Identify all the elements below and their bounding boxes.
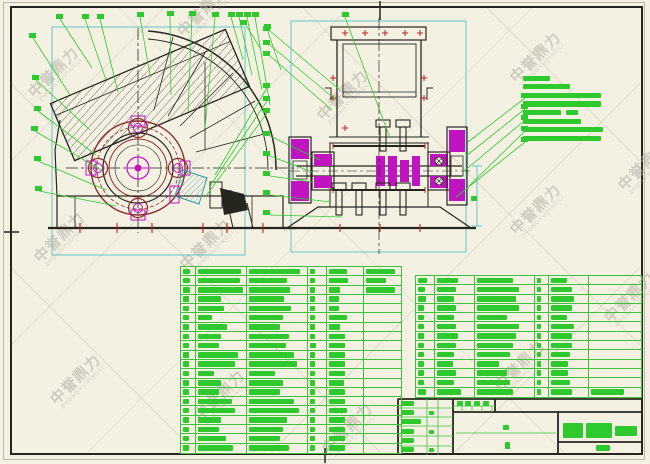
- parts-cell: [247, 332, 307, 340]
- parts-cell: [327, 416, 365, 424]
- technical-notes-block: [523, 74, 608, 143]
- cell-text-bar: [198, 287, 243, 293]
- parts-cell: [589, 295, 642, 303]
- parts-cell: [589, 360, 642, 368]
- cell-text-bar: [198, 278, 240, 284]
- parts-cell: [435, 313, 475, 321]
- parts-cell: [549, 388, 589, 397]
- parts-cell: [181, 425, 196, 433]
- parts-cell: [247, 416, 307, 424]
- parts-cell: [549, 285, 589, 293]
- parts-cell: [327, 286, 365, 294]
- cell-text-bar: [477, 389, 513, 395]
- cell-text-bar: [198, 436, 226, 442]
- parts-cell: [196, 379, 248, 387]
- parts-cell: [327, 267, 365, 275]
- cell-text-bar: [183, 417, 189, 423]
- parts-cell: [196, 388, 248, 396]
- cell-text-bar: [329, 296, 339, 302]
- parts-cell: [247, 351, 307, 359]
- parts-cell: [308, 276, 327, 284]
- cell-text-bar: [437, 287, 456, 293]
- parts-row: [416, 313, 641, 322]
- parts-cell: [196, 351, 248, 359]
- cell-text-bar: [183, 269, 190, 275]
- cell-text-bar: [329, 269, 347, 275]
- parts-cell: [247, 267, 307, 275]
- parts-cell: [589, 332, 642, 340]
- cell-text-bar: [183, 324, 189, 330]
- cell-text-bar: [477, 305, 519, 311]
- parts-row: [181, 323, 401, 332]
- cell-text-bar: [310, 371, 315, 377]
- parts-cell: [308, 360, 327, 368]
- parts-row: [181, 379, 401, 388]
- parts-cell: [327, 388, 365, 396]
- parts-cell: [247, 276, 307, 284]
- title-text-bar: [615, 426, 637, 436]
- parts-cell: [181, 444, 196, 453]
- parts-cell: [308, 379, 327, 387]
- cell-text-bar: [249, 427, 283, 433]
- parts-cell: [535, 304, 549, 312]
- title-text-bar: [505, 442, 510, 449]
- parts-row: [181, 341, 401, 350]
- cell-text-bar: [477, 352, 511, 358]
- parts-row: [416, 332, 641, 341]
- cell-text-bar: [418, 333, 424, 339]
- parts-cell: [549, 295, 589, 303]
- cell-text-bar: [249, 399, 294, 405]
- cell-text-bar: [437, 333, 458, 339]
- parts-cell: [364, 360, 401, 368]
- cell-text-bar: [537, 324, 541, 330]
- parts-cell: [181, 276, 196, 284]
- parts-cell: [327, 397, 365, 405]
- cell-text-bar: [551, 315, 567, 321]
- title-text-bar: [596, 445, 610, 451]
- parts-cell: [196, 295, 248, 303]
- title-text-bar: [401, 401, 414, 406]
- hammers: [332, 120, 410, 215]
- parts-cell: [247, 360, 307, 368]
- cell-text-bar: [366, 278, 385, 284]
- parts-cell: [308, 313, 327, 321]
- parts-cell: [549, 369, 589, 377]
- parts-cell: [308, 332, 327, 340]
- parts-cell: [416, 313, 435, 321]
- parts-cell: [416, 360, 435, 368]
- parts-cell: [181, 286, 196, 294]
- cell-text-bar: [591, 389, 625, 395]
- cell-text-bar: [249, 389, 280, 395]
- parts-cell: [327, 369, 365, 377]
- parts-cell: [589, 350, 642, 358]
- cell-text-bar: [329, 445, 346, 451]
- cell-text-bar: [310, 399, 315, 405]
- parts-cell: [181, 295, 196, 303]
- parts-cell: [435, 295, 475, 303]
- parts-cell: [475, 304, 535, 312]
- note-line: [523, 100, 608, 109]
- parts-row: [416, 276, 641, 285]
- cell-text-bar: [183, 306, 189, 312]
- parts-row: [181, 295, 401, 304]
- parts-row: [416, 378, 641, 387]
- cell-text-bar: [198, 361, 236, 367]
- parts-cell: [475, 313, 535, 321]
- note-text-bar: [523, 101, 601, 106]
- parts-cell: [549, 322, 589, 330]
- parts-cell: [416, 369, 435, 377]
- parts-cell: [181, 304, 196, 312]
- parts-cell: [435, 332, 475, 340]
- parts-list-left: [180, 266, 402, 454]
- parts-row: [416, 350, 641, 359]
- title-text-bar: [586, 423, 612, 438]
- parts-cell: [181, 267, 196, 275]
- title-text-bar: [563, 423, 583, 438]
- cell-text-bar: [437, 380, 455, 386]
- parts-cell: [364, 276, 401, 284]
- cell-text-bar: [329, 436, 346, 442]
- cell-text-bar: [551, 324, 574, 330]
- cell-text-bar: [310, 389, 316, 395]
- parts-cell: [535, 388, 549, 397]
- note-line: [523, 108, 608, 117]
- cell-text-bar: [329, 315, 347, 321]
- parts-cell: [247, 313, 307, 321]
- title-text-bar: [471, 196, 477, 201]
- parts-cell: [327, 295, 365, 303]
- cell-text-bar: [329, 389, 346, 395]
- cell-text-bar: [310, 334, 316, 340]
- cell-text-bar: [418, 343, 424, 349]
- cell-text-bar: [329, 343, 346, 349]
- title-text-bar: [465, 401, 471, 406]
- title-text-bar: [401, 419, 421, 424]
- parts-cell: [247, 397, 307, 405]
- cell-text-bar: [249, 380, 283, 386]
- cell-text-bar: [437, 343, 456, 349]
- cell-text-bar: [183, 389, 189, 395]
- parts-cell: [327, 313, 365, 321]
- cell-text-bar: [249, 352, 294, 358]
- cell-text-bar: [537, 315, 541, 321]
- parts-cell: [308, 267, 327, 275]
- cell-text-bar: [310, 296, 315, 302]
- parts-cell: [435, 360, 475, 368]
- cell-text-bar: [249, 436, 280, 442]
- parts-cell: [589, 285, 642, 293]
- note-line: [523, 83, 608, 92]
- feed-hopper: [50, 29, 249, 160]
- parts-cell: [475, 285, 535, 293]
- parts-cell: [247, 406, 307, 414]
- cell-text-bar: [198, 343, 219, 349]
- cell-text-bar: [310, 445, 316, 451]
- parts-cell: [589, 388, 642, 397]
- cell-text-bar: [366, 269, 394, 275]
- cell-text-bar: [477, 324, 519, 330]
- cell-text-bar: [329, 306, 339, 312]
- parts-cell: [308, 323, 327, 331]
- parts-cell: [549, 304, 589, 312]
- parts-cell: [196, 369, 248, 377]
- front-view: [283, 18, 482, 254]
- cell-text-bar: [551, 352, 570, 358]
- cell-text-bar: [551, 343, 572, 349]
- parts-cell: [327, 341, 365, 349]
- cell-text-bar: [477, 315, 508, 321]
- cell-text-bar: [551, 305, 572, 311]
- cell-text-bar: [418, 324, 424, 330]
- cell-text-bar: [310, 269, 316, 275]
- parts-row: [181, 360, 401, 369]
- parts-cell: [364, 425, 401, 433]
- parts-row: [181, 351, 401, 360]
- parts-cell: [181, 369, 196, 377]
- parts-cell: [364, 397, 401, 405]
- parts-cell: [435, 341, 475, 349]
- parts-cell: [327, 360, 365, 368]
- parts-cell: [364, 332, 401, 340]
- cell-text-bar: [477, 380, 511, 386]
- parts-row: [416, 304, 641, 313]
- cell-text-bar: [183, 371, 189, 377]
- parts-cell: [364, 304, 401, 312]
- cell-text-bar: [183, 427, 189, 433]
- cell-text-bar: [329, 399, 346, 405]
- parts-cell: [196, 332, 248, 340]
- cell-text-bar: [418, 296, 426, 302]
- cell-text-bar: [477, 343, 513, 349]
- parts-cell: [549, 332, 589, 340]
- cell-text-bar: [310, 287, 316, 293]
- cell-text-bar: [477, 296, 516, 302]
- parts-cell: [535, 378, 549, 386]
- cell-text-bar: [310, 380, 316, 386]
- parts-cell: [327, 379, 365, 387]
- title-text-bar: [457, 401, 463, 406]
- parts-cell: [327, 406, 365, 414]
- cell-text-bar: [310, 343, 316, 349]
- cell-text-bar: [183, 380, 189, 386]
- cell-text-bar: [249, 408, 298, 414]
- parts-cell: [247, 304, 307, 312]
- cell-text-bar: [418, 370, 424, 376]
- parts-cell: [308, 295, 327, 303]
- parts-cell: [308, 369, 327, 377]
- title-text-bar: [474, 401, 480, 406]
- parts-cell: [435, 350, 475, 358]
- cell-text-bar: [537, 305, 541, 311]
- parts-cell: [475, 378, 535, 386]
- title-text-bar: [401, 438, 414, 443]
- parts-cell: [589, 322, 642, 330]
- title-text-bar: [429, 430, 434, 434]
- cell-text-bar: [551, 287, 572, 293]
- cell-text-bar: [537, 370, 541, 376]
- note-line: [523, 91, 608, 100]
- parts-cell: [475, 322, 535, 330]
- parts-cell: [416, 285, 435, 293]
- cell-text-bar: [551, 278, 567, 284]
- parts-cell: [181, 351, 196, 359]
- cell-text-bar: [477, 361, 499, 367]
- parts-row: [181, 304, 401, 313]
- cell-text-bar: [329, 352, 346, 358]
- note-text-bar: [523, 84, 570, 89]
- parts-cell: [181, 360, 196, 368]
- note-text-bar: [566, 110, 578, 115]
- cell-text-bar: [437, 305, 456, 311]
- parts-cell: [181, 406, 196, 414]
- parts-cell: [181, 379, 196, 387]
- parts-row: [181, 332, 401, 341]
- parts-cell: [475, 350, 535, 358]
- parts-cell: [308, 406, 327, 414]
- cell-text-bar: [198, 315, 212, 321]
- parts-cell: [435, 304, 475, 312]
- parts-cell: [435, 322, 475, 330]
- parts-cell: [475, 360, 535, 368]
- parts-cell: [196, 276, 248, 284]
- cell-text-bar: [551, 296, 574, 302]
- parts-cell: [327, 444, 365, 453]
- cell-text-bar: [329, 417, 346, 423]
- cell-text-bar: [537, 278, 541, 284]
- parts-row: [181, 369, 401, 378]
- cell-text-bar: [477, 370, 508, 376]
- parts-cell: [181, 341, 196, 349]
- cell-text-bar: [183, 352, 189, 358]
- cell-text-bar: [329, 334, 346, 340]
- cell-text-bar: [437, 278, 458, 284]
- parts-cell: [416, 295, 435, 303]
- parts-cell: [475, 295, 535, 303]
- parts-cell: [435, 369, 475, 377]
- parts-cell: [475, 388, 535, 397]
- cell-text-bar: [418, 389, 426, 395]
- parts-cell: [196, 267, 248, 275]
- cell-text-bar: [551, 380, 570, 386]
- cell-text-bar: [437, 370, 456, 376]
- parts-cell: [589, 276, 642, 284]
- cell-text-bar: [310, 361, 315, 367]
- parts-cell: [416, 388, 435, 397]
- cell-text-bar: [329, 361, 346, 367]
- cell-text-bar: [183, 296, 189, 302]
- parts-cell: [181, 388, 196, 396]
- cell-text-bar: [437, 315, 455, 321]
- parts-cell: [196, 286, 248, 294]
- cell-text-bar: [249, 371, 274, 377]
- parts-cell: [181, 323, 196, 331]
- title-text-bar: [429, 448, 434, 452]
- cad-drawing-sheet: { "colors": { "sheet_background": "#f4f1…: [0, 0, 650, 464]
- parts-cell: [535, 322, 549, 330]
- parts-cell: [475, 276, 535, 284]
- parts-cell: [535, 332, 549, 340]
- parts-cell: [247, 323, 307, 331]
- parts-cell: [308, 416, 327, 424]
- parts-row: [181, 397, 401, 406]
- parts-cell: [196, 341, 248, 349]
- parts-cell: [308, 341, 327, 349]
- parts-cell: [364, 313, 401, 321]
- cell-text-bar: [310, 315, 315, 321]
- parts-row: [181, 416, 401, 425]
- parts-cell: [327, 276, 365, 284]
- parts-cell: [196, 406, 248, 414]
- title-text-bar: [483, 401, 489, 406]
- parts-row: [416, 322, 641, 331]
- parts-cell: [196, 416, 248, 424]
- cell-text-bar: [329, 408, 347, 414]
- cell-text-bar: [198, 408, 235, 414]
- parts-cell: [247, 425, 307, 433]
- cell-text-bar: [418, 361, 424, 367]
- parts-cell: [308, 444, 327, 453]
- cell-text-bar: [537, 343, 541, 349]
- parts-cell: [181, 434, 196, 442]
- cell-text-bar: [198, 389, 219, 395]
- title-text-bar: [429, 411, 434, 415]
- parts-cell: [327, 332, 365, 340]
- parts-row: [181, 286, 401, 295]
- parts-cell: [535, 313, 549, 321]
- cell-text-bar: [310, 324, 315, 330]
- cell-text-bar: [198, 334, 222, 340]
- parts-cell: [196, 434, 248, 442]
- cell-text-bar: [183, 399, 189, 405]
- cell-text-bar: [477, 287, 519, 293]
- cell-text-bar: [329, 324, 341, 330]
- parts-cell: [196, 323, 248, 331]
- parts-cell: [549, 350, 589, 358]
- cell-text-bar: [183, 343, 189, 349]
- parts-row: [181, 276, 401, 285]
- parts-cell: [308, 304, 327, 312]
- cell-text-bar: [418, 352, 424, 358]
- cell-text-bar: [310, 427, 316, 433]
- note-line: [523, 117, 608, 126]
- parts-row: [416, 285, 641, 294]
- cell-text-bar: [477, 333, 516, 339]
- parts-row: [181, 444, 401, 453]
- note-text-bar: [523, 119, 581, 124]
- parts-cell: [247, 444, 307, 453]
- note-text-bar: [523, 93, 601, 98]
- parts-cell: [589, 369, 642, 377]
- parts-cell: [364, 379, 401, 387]
- parts-cell: [364, 416, 401, 424]
- parts-cell: [416, 350, 435, 358]
- parts-cell: [181, 397, 196, 405]
- parts-cell: [364, 388, 401, 396]
- parts-cell: [416, 332, 435, 340]
- parts-row: [416, 360, 641, 369]
- cell-text-bar: [551, 370, 569, 376]
- parts-cell: [416, 304, 435, 312]
- parts-cell: [247, 379, 307, 387]
- parts-cell: [535, 276, 549, 284]
- parts-cell: [327, 323, 365, 331]
- title-text-bar: [401, 429, 414, 434]
- parts-row: [181, 434, 401, 443]
- cell-text-bar: [183, 278, 190, 284]
